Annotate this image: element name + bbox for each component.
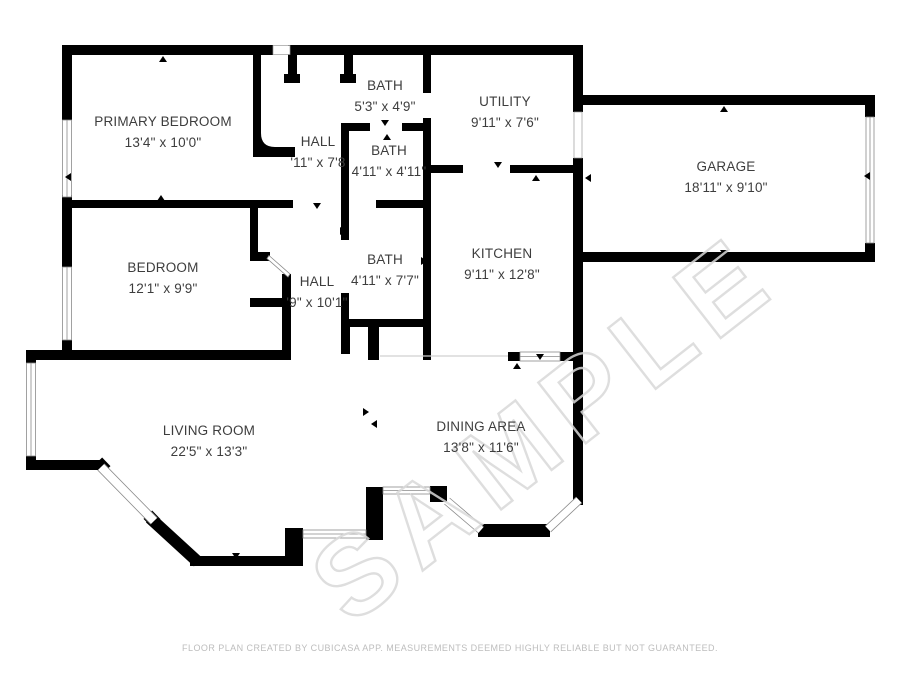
room-name: BATH	[352, 140, 427, 161]
room-dimensions: 4'11" x 4'11"	[352, 161, 427, 182]
floor-plan-page: SAMPLE PRIMARY BEDROOM 13'4" x 10'0" HAL…	[0, 0, 900, 675]
room-label-bedroom: BEDROOM 12'1" x 9'9"	[127, 257, 198, 299]
room-name: HALL	[286, 271, 347, 292]
room-label-kitchen: KITCHEN 9'11" x 12'8"	[464, 243, 540, 285]
room-name: BEDROOM	[127, 257, 198, 278]
utility-garage-door-opening	[574, 112, 582, 158]
room-name: UTILITY	[471, 91, 539, 112]
room-dimensions: 22'5" x 13'3"	[163, 441, 255, 462]
room-label-primary-bedroom: PRIMARY BEDROOM 13'4" x 10'0"	[94, 111, 232, 153]
disclaimer-text: FLOOR PLAN CREATED BY CUBICASA APP. MEAS…	[182, 643, 718, 653]
room-dimensions: 13'4" x 10'0"	[94, 132, 232, 153]
room-name: BATH	[351, 249, 419, 270]
room-label-hall-lower: HALL '9" x 10'1"	[286, 271, 347, 313]
room-name: KITCHEN	[464, 243, 540, 264]
room-label-garage: GARAGE 18'11" x 9'10"	[684, 156, 767, 198]
room-dimensions: 9'11" x 7'6"	[471, 112, 539, 133]
room-dimensions: 12'1" x 9'9"	[127, 278, 198, 299]
room-label-living-room: LIVING ROOM 22'5" x 13'3"	[163, 420, 255, 462]
room-label-utility: UTILITY 9'11" x 7'6"	[471, 91, 539, 133]
room-label-dining-area: DINING AREA 13'8" x 11'6"	[436, 416, 525, 458]
room-label-bath-top: BATH 5'3" x 4'9"	[354, 75, 415, 117]
room-dimensions: 4'11" x 7'7"	[351, 270, 419, 291]
room-name: BATH	[354, 75, 415, 96]
floor-plan-drawing: SAMPLE	[0, 0, 900, 675]
room-dimensions: 9'11" x 12'8"	[464, 264, 540, 285]
room-label-bath-middle: BATH 4'11" x 4'11"	[352, 140, 427, 182]
room-name: DINING AREA	[436, 416, 525, 437]
room-dimensions: 5'3" x 4'9"	[354, 96, 415, 117]
room-label-hall-upper: HALL '11" x 7'8	[290, 131, 345, 173]
room-name: HALL	[290, 131, 345, 152]
room-name: GARAGE	[684, 156, 767, 177]
entry-door-opening	[273, 46, 290, 55]
room-label-bath-lower: BATH 4'11" x 7'7"	[351, 249, 419, 291]
room-dimensions: '11" x 7'8	[290, 152, 345, 173]
room-name: LIVING ROOM	[163, 420, 255, 441]
room-name: PRIMARY BEDROOM	[94, 111, 232, 132]
room-dimensions: 18'11" x 9'10"	[684, 177, 767, 198]
room-dimensions: '9" x 10'1"	[286, 292, 347, 313]
room-dimensions: 13'8" x 11'6"	[436, 437, 525, 458]
